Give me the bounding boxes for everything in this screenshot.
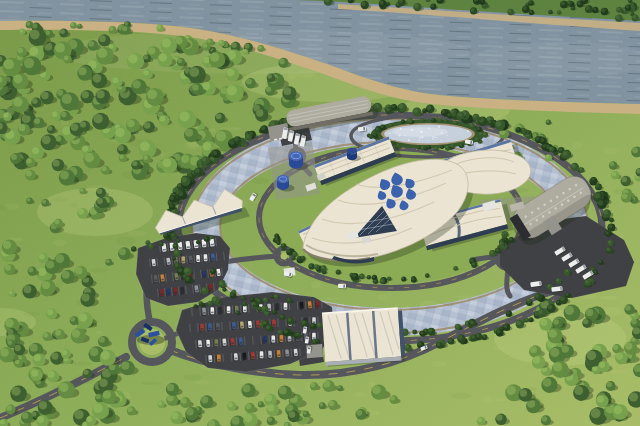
vehicle-car	[216, 355, 221, 363]
vehicle-car	[209, 307, 214, 315]
vehicle-car	[270, 335, 275, 343]
vehicle-car	[207, 323, 212, 331]
vehicle-car	[242, 305, 247, 313]
tank-farm-pad	[268, 142, 320, 200]
vehicle-car	[202, 254, 207, 262]
vehicle-car	[195, 255, 200, 263]
vehicle-car	[259, 351, 264, 359]
aerial-rendering-power-plant-campus	[0, 0, 640, 426]
vehicle-car	[213, 339, 218, 347]
vehicle-car	[226, 306, 231, 314]
vehicle-car	[199, 324, 204, 332]
vehicle-van	[338, 284, 347, 290]
vehicle-car	[262, 336, 267, 344]
west-roundabout-island	[281, 253, 288, 260]
vehicle-car	[278, 335, 283, 343]
vehicle-car	[315, 301, 320, 309]
tank-top-3	[347, 148, 357, 154]
rendering-canvas	[0, 0, 640, 426]
vehicle-car	[283, 303, 288, 311]
vehicle-car	[152, 275, 157, 283]
vehicle-car	[180, 256, 185, 264]
